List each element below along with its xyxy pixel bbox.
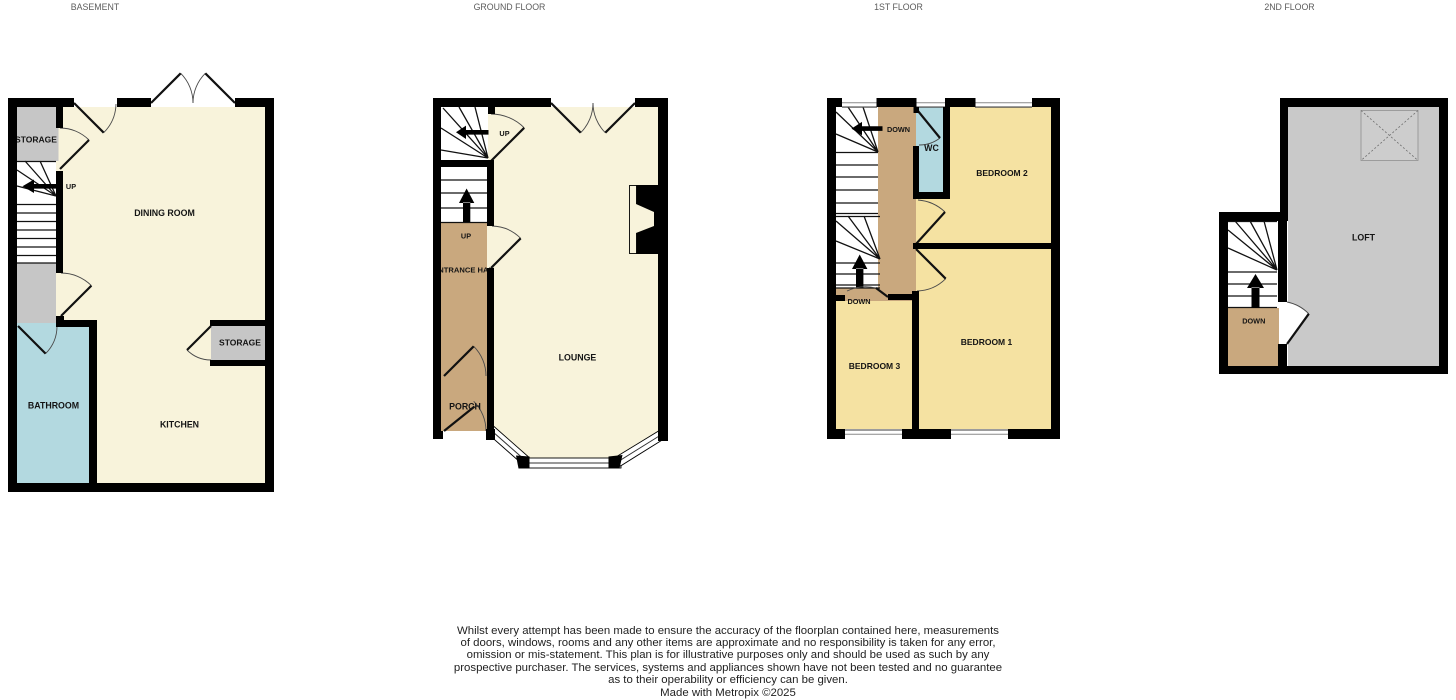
svg-text:UP: UP <box>461 232 471 241</box>
svg-text:BEDROOM 1: BEDROOM 1 <box>961 337 1013 347</box>
svg-text:PORCH: PORCH <box>449 402 481 412</box>
svg-text:WC: WC <box>924 143 939 153</box>
svg-text:BEDROOM 2: BEDROOM 2 <box>976 168 1028 178</box>
svg-text:STORAGE: STORAGE <box>219 338 261 348</box>
svg-text:DOWN: DOWN <box>887 125 910 134</box>
svg-text:DOWN: DOWN <box>1242 317 1265 326</box>
svg-text:BATHROOM: BATHROOM <box>28 400 79 410</box>
svg-text:UP: UP <box>66 182 76 191</box>
svg-text:LOUNGE: LOUNGE <box>559 352 597 362</box>
svg-text:BASEMENT: BASEMENT <box>71 2 120 12</box>
svg-text:BEDROOM 3: BEDROOM 3 <box>849 361 901 371</box>
svg-text:LOFT: LOFT <box>1352 232 1376 242</box>
svg-text:2ND FLOOR: 2ND FLOOR <box>1264 2 1314 12</box>
svg-text:1ST FLOOR: 1ST FLOOR <box>874 2 923 12</box>
svg-text:KITCHEN: KITCHEN <box>160 420 199 430</box>
svg-text:UP: UP <box>499 129 509 138</box>
svg-text:GROUND FLOOR: GROUND FLOOR <box>474 2 546 12</box>
svg-text:STORAGE: STORAGE <box>15 135 57 145</box>
svg-text:DINING ROOM: DINING ROOM <box>134 208 195 218</box>
svg-text:DOWN: DOWN <box>847 297 870 306</box>
